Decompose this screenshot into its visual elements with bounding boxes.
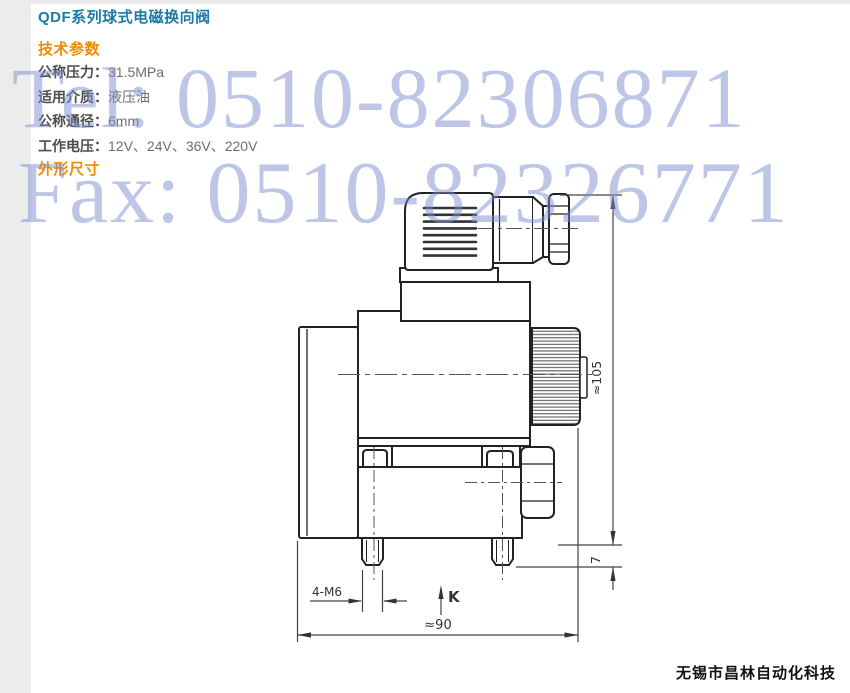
param-value: 31.5MPa	[108, 64, 164, 80]
param-label: 适用介质：	[38, 89, 108, 105]
param-working-voltage: 工作电压：12V、24V、36V、220V	[38, 134, 257, 159]
dim-stud-label: 7	[588, 556, 603, 564]
knurled-knob	[532, 328, 587, 425]
footer-company-name: 无锡市昌林自动化科技	[676, 662, 836, 683]
dim-height-label: ≈105	[589, 361, 604, 395]
section-heading-outline-dimensions: 外形尺寸	[38, 158, 100, 179]
parameter-list: 公称压力：31.5MPa 适用介质：液压油 公称通径：6mm 工作电压：12V、…	[38, 60, 257, 158]
param-label: 工作电压：	[38, 138, 108, 154]
param-nominal-pressure: 公称压力：31.5MPa	[38, 60, 257, 85]
param-label: 公称通径：	[38, 113, 108, 129]
param-value: 液压油	[108, 89, 150, 105]
dim-width-label: ≈90	[424, 618, 451, 633]
din-connector	[405, 193, 569, 270]
param-nominal-diameter: 公称通径：6mm	[38, 109, 257, 134]
port-mark-label: K	[448, 588, 461, 606]
coil-body-outline	[299, 268, 554, 565]
page-title: QDF系列球式电磁换向阀	[38, 6, 211, 27]
section-heading-technical-parameters: 技术参数	[38, 38, 100, 59]
param-value: 12V、24V、36V、220V	[108, 138, 257, 154]
param-label: 公称压力：	[38, 64, 108, 80]
param-medium: 适用介质：液压油	[38, 85, 257, 110]
param-value: 6mm	[108, 113, 139, 129]
dim-thread-label: 4-M6	[312, 585, 342, 599]
